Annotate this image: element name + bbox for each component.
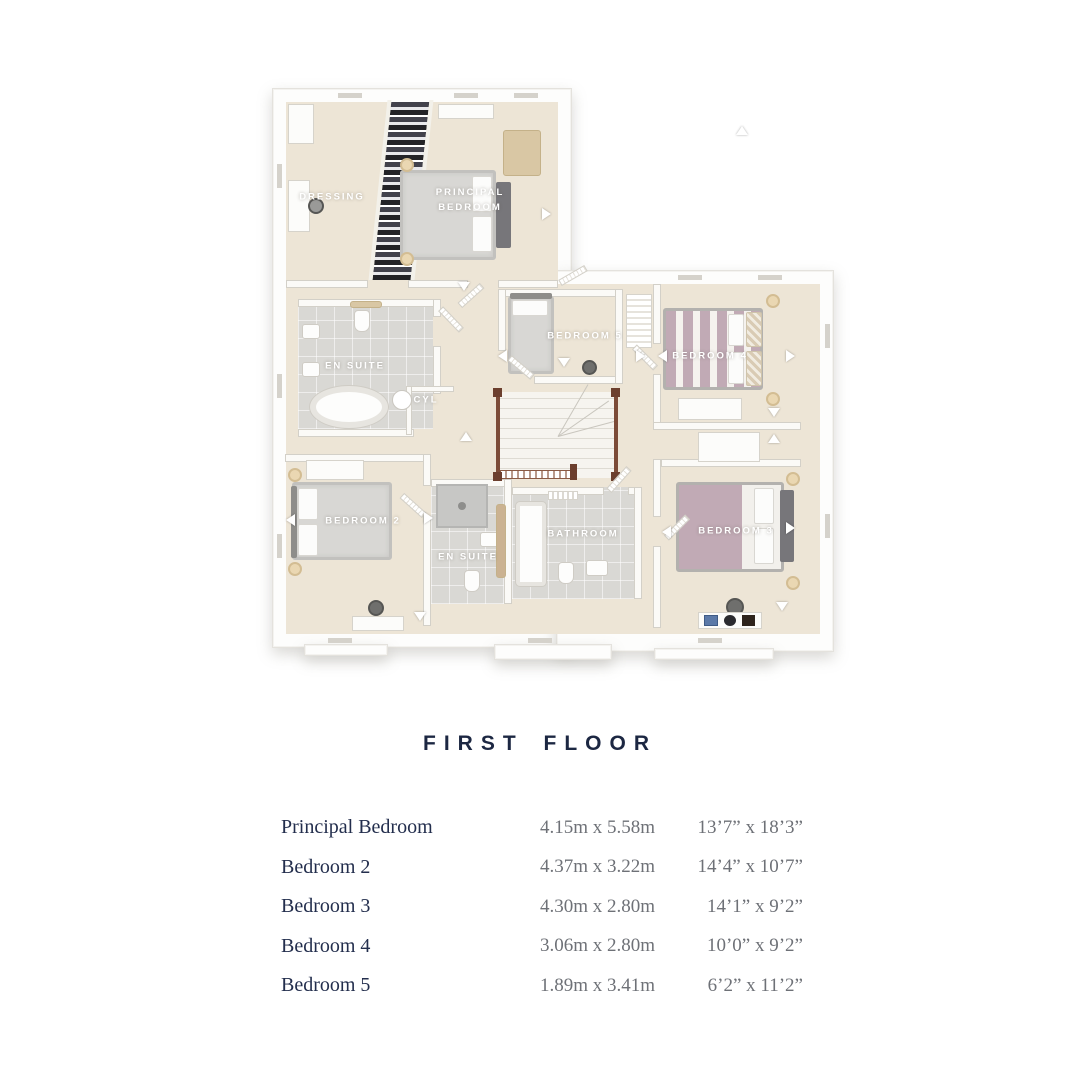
dressing-cabinet [288,104,314,144]
imperial-size: 6’2” x 11’2” [655,975,803,997]
wall [653,459,661,517]
threshold [496,504,506,578]
headboard [510,293,552,299]
window [528,638,552,643]
room-label-bathroom: BATHROOM [547,526,618,541]
table-row: Bedroom 4 3.06m x 2.80m 10’0” x 9’2” [281,927,803,967]
window [678,275,702,280]
wall [534,376,623,384]
room-name: Bedroom 5 [281,974,503,997]
pillow [512,300,548,316]
arrow-icon [736,126,748,135]
bedside-lamp [288,562,302,576]
wall [406,386,454,392]
shower-drain [458,502,466,510]
desk [352,616,404,631]
bay-window [494,644,612,660]
desk-item [742,615,755,626]
newel-post [611,388,620,397]
stair-rail [496,392,500,478]
toilet [558,562,574,584]
room-label-bedroom-5: BEDROOM 5 [547,328,623,343]
wall [498,280,558,288]
dresser [438,104,494,119]
hot-water-cylinder [392,390,412,410]
bay-window [304,644,388,656]
newel-post [493,472,502,481]
arrow-icon [424,512,433,524]
wall [653,284,661,344]
wall [634,487,642,599]
window [277,534,282,558]
stair-rail [614,392,618,478]
room-label-en-suite-2: EN SUITE [438,549,498,564]
imperial-size: 10’0” x 9’2” [655,935,803,957]
table-row: Principal Bedroom 4.15m x 5.58m 13’7” x … [281,808,803,848]
bedside-lamp [288,468,302,482]
room-label-dressing: DRESSING [299,189,365,204]
pillow [746,312,762,347]
bedside-lamp [766,294,780,308]
bathtub [516,502,546,586]
shelf [350,301,382,308]
wall [653,422,801,430]
arrow-icon [460,432,472,441]
first-floor-plan: DRESSING PRINCIPAL BEDROOM EN SUITE CYL … [258,84,850,668]
armchair [503,130,541,176]
arrow-icon [786,522,795,534]
room-name: Bedroom 4 [281,935,503,958]
wall [286,280,368,288]
table-row: Bedroom 5 1.89m x 3.41m 6’2” x 11’2” [281,966,803,1006]
balustrade [500,470,574,479]
room-name: Principal Bedroom [281,816,503,839]
imperial-size: 13’7” x 18’3” [655,817,803,839]
arrow-icon [658,350,667,362]
table-row: Bedroom 3 4.30m x 2.80m 14’1” x 9’2” [281,887,803,927]
bedside-lamp [400,158,414,172]
metric-size: 3.06m x 2.80m [503,935,655,957]
window [338,93,362,98]
table-row: Bedroom 2 4.37m x 3.22m 14’4” x 10’7” [281,848,803,888]
chair [582,360,597,375]
hall-cupboard [698,432,760,462]
arrow-icon [768,408,780,417]
arrow-icon [776,602,788,611]
dimensions-table: Principal Bedroom 4.15m x 5.58m 13’7” x … [281,808,803,1006]
bedside-lamp [786,472,800,486]
toilet [354,310,370,332]
metric-size: 4.15m x 5.58m [503,817,655,839]
window [277,164,282,188]
pillow [754,488,774,524]
airing-cupboard [626,294,652,348]
pillow [298,524,318,556]
blanket-box [678,398,742,420]
wall [423,454,431,486]
metric-size: 1.89m x 3.41m [503,975,655,997]
wall [653,546,661,628]
newel-post [570,464,577,480]
desk-chair [368,600,384,616]
wall [423,516,431,626]
window [825,514,830,538]
radiator [548,491,578,500]
newel-post [493,388,502,397]
window [454,93,478,98]
pillow [298,488,318,520]
arrow-icon [498,350,507,362]
window [277,374,282,398]
arrow-icon [768,434,780,443]
arrow-icon [458,282,470,291]
arrow-icon [636,350,645,362]
bedside-lamp [400,252,414,266]
window [514,93,538,98]
arrow-icon [542,208,551,220]
imperial-size: 14’4” x 10’7” [655,856,803,878]
pillow [728,314,744,346]
room-label-bedroom-4: BEDROOM 4 [672,348,748,363]
room-name: Bedroom 2 [281,856,503,879]
room-label-principal-bedroom: PRINCIPAL BEDROOM [422,185,518,215]
sink [302,324,320,339]
arrow-icon [414,612,426,621]
arrow-icon [662,526,671,538]
room-label-bedroom-3: BEDROOM 3 [698,523,774,538]
metric-size: 4.30m x 2.80m [503,896,655,918]
pillow [472,216,492,252]
sink [586,560,608,576]
dressing-table [288,180,310,232]
toilet [464,570,480,592]
room-label-cyl: CYL [414,392,439,407]
bedside-lamp [786,576,800,590]
wall [498,289,506,351]
pillow [746,351,762,386]
arrow-icon [286,514,295,526]
wall [298,429,414,437]
arrow-icon [786,350,795,362]
metric-size: 4.37m x 3.22m [503,856,655,878]
imperial-size: 14’1” x 9’2” [655,896,803,918]
arrow-icon [558,358,570,367]
desk-item [704,615,718,626]
floorplan-page: DRESSING PRINCIPAL BEDROOM EN SUITE CYL … [0,0,1080,1080]
page-title: FIRST FLOOR [0,732,1080,756]
window [698,638,722,643]
bedside-lamp [766,392,780,406]
window [758,275,782,280]
bay-window [654,648,774,660]
room-label-en-suite-1: EN SUITE [325,358,385,373]
room-name: Bedroom 3 [281,895,503,918]
wardrobe [306,460,364,480]
sink [302,362,320,377]
window [825,324,830,348]
room-label-bedroom-2: BEDROOM 2 [325,513,401,528]
window [328,638,352,643]
desk-item [724,615,736,626]
bathtub [310,386,388,428]
